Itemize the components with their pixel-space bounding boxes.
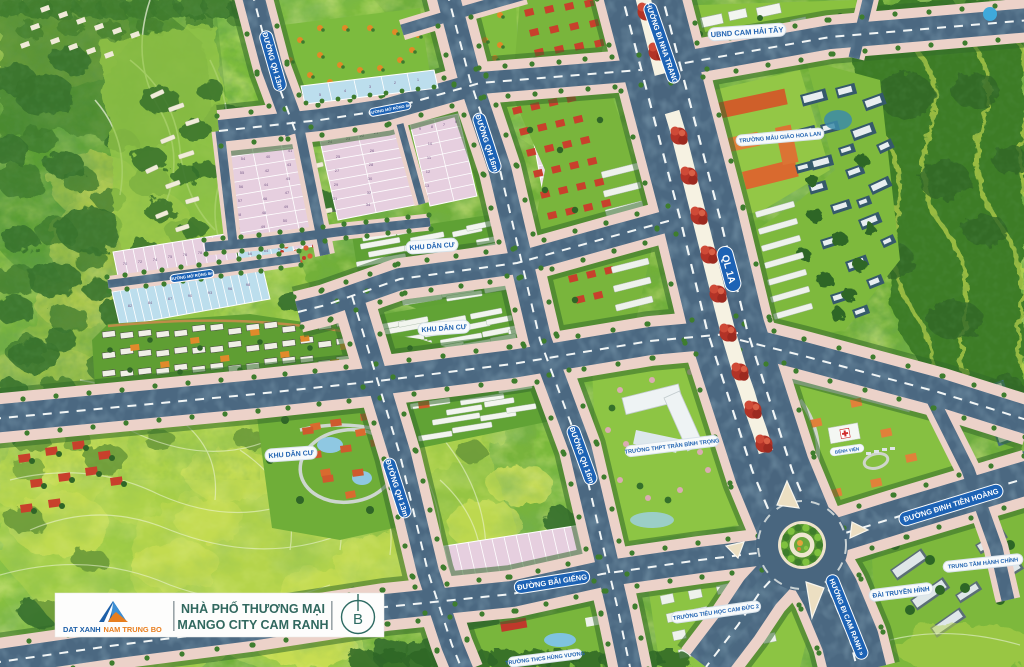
svg-text:56: 56: [239, 184, 244, 189]
svg-text:46: 46: [263, 196, 268, 201]
svg-text:28: 28: [369, 162, 374, 167]
svg-text:54: 54: [241, 156, 246, 161]
svg-text:DAT XANH: DAT XANH: [63, 625, 101, 634]
svg-text:75: 75: [168, 254, 173, 259]
svg-text:26: 26: [370, 148, 375, 153]
svg-text:29: 29: [334, 182, 339, 187]
svg-text:74: 74: [153, 257, 158, 262]
svg-text:30: 30: [368, 176, 373, 181]
svg-text:32: 32: [367, 190, 372, 195]
svg-text:31: 31: [333, 196, 338, 201]
svg-text:98: 98: [246, 282, 251, 287]
svg-text:49: 49: [284, 204, 289, 209]
svg-text:45: 45: [286, 176, 291, 181]
svg-text:13: 13: [425, 183, 430, 188]
svg-text:96: 96: [228, 286, 233, 291]
svg-text:47: 47: [285, 190, 290, 195]
svg-text:43: 43: [287, 162, 292, 167]
svg-text:44: 44: [264, 182, 269, 187]
svg-text:33: 33: [332, 208, 337, 213]
svg-text:B: B: [353, 611, 363, 628]
svg-text:87: 87: [168, 296, 173, 301]
svg-text:49: 49: [261, 224, 266, 229]
svg-text:66: 66: [248, 251, 253, 256]
svg-text:50: 50: [283, 218, 288, 223]
svg-text:42: 42: [265, 168, 270, 173]
svg-text:84: 84: [148, 300, 153, 305]
svg-text:25: 25: [336, 154, 341, 159]
svg-text:34: 34: [366, 202, 371, 207]
svg-text:90: 90: [188, 293, 193, 298]
svg-text:NHÀ PHỐ THƯƠNG MẠI: NHÀ PHỐ THƯƠNG MẠI: [181, 601, 325, 616]
svg-text:10: 10: [428, 141, 433, 146]
svg-text:57: 57: [238, 198, 243, 203]
svg-text:70: 70: [123, 261, 128, 266]
svg-text:55: 55: [240, 170, 245, 175]
svg-text:MANGO CITY CAM RANH: MANGO CITY CAM RANH: [177, 618, 328, 632]
svg-text:12: 12: [426, 169, 431, 174]
svg-text:40: 40: [266, 154, 271, 159]
svg-text:76: 76: [183, 252, 188, 257]
svg-text:NAM TRUNG BO: NAM TRUNG BO: [104, 625, 163, 634]
svg-text:48: 48: [262, 210, 267, 215]
svg-text:78: 78: [198, 250, 203, 255]
svg-text:82: 82: [128, 303, 133, 308]
svg-text:93: 93: [208, 290, 213, 295]
svg-text:72: 72: [138, 259, 143, 264]
svg-text:27: 27: [335, 168, 340, 173]
